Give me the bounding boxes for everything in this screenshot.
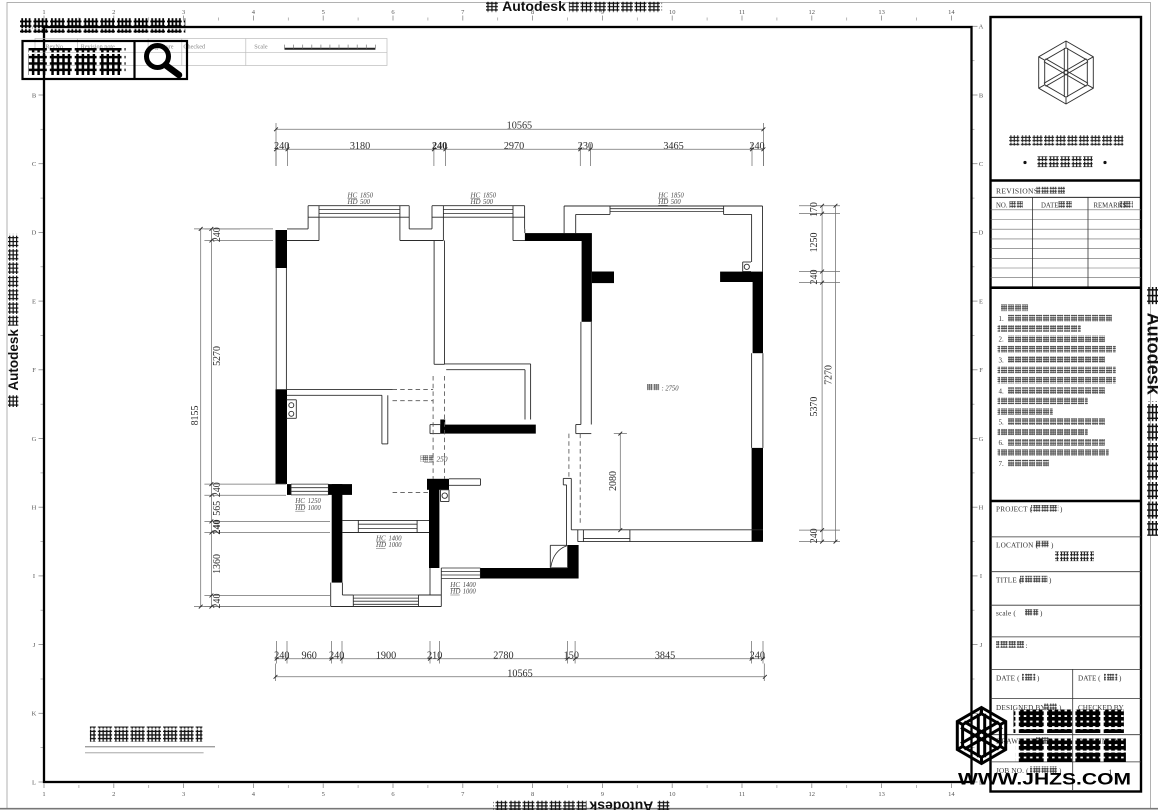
svg-text:240: 240	[274, 141, 289, 152]
svg-text:240: 240	[211, 519, 223, 534]
svg-text:1.: 1.	[999, 315, 1005, 323]
svg-text:5: 5	[322, 791, 325, 798]
svg-text:Autodesk: Autodesk	[1144, 313, 1158, 396]
svg-text:1: 1	[42, 791, 45, 798]
svg-text:250: 250	[437, 456, 448, 464]
svg-text:DATE (: DATE (	[996, 674, 1020, 682]
svg-text:LOCATION (: LOCATION (	[996, 541, 1039, 549]
svg-text:TITLE (: TITLE (	[996, 576, 1022, 584]
svg-text:scale (: scale (	[996, 610, 1016, 618]
svg-text:5270: 5270	[211, 346, 223, 366]
svg-text:E: E	[979, 298, 983, 305]
svg-text:Scale: Scale	[254, 44, 268, 51]
svg-text:A: A	[979, 24, 984, 31]
svg-text:240: 240	[808, 528, 820, 543]
svg-text:565: 565	[211, 500, 223, 515]
svg-text:D: D	[979, 230, 984, 237]
svg-text:D: D	[32, 230, 37, 237]
svg-text:C: C	[979, 161, 983, 168]
svg-text:HD: HD	[294, 504, 305, 512]
svg-text:960: 960	[302, 650, 317, 661]
svg-text:3180: 3180	[350, 141, 370, 152]
svg-text:3: 3	[182, 9, 185, 16]
svg-text:E: E	[32, 298, 36, 305]
svg-text:1000: 1000	[463, 588, 476, 596]
svg-text:HD: HD	[470, 198, 481, 206]
svg-text:230: 230	[578, 141, 593, 152]
svg-text:5.: 5.	[999, 419, 1005, 427]
svg-text:1000: 1000	[308, 504, 321, 512]
svg-text:1000: 1000	[389, 541, 402, 549]
svg-text:240: 240	[750, 650, 765, 661]
svg-text:DATE (: DATE (	[1078, 674, 1101, 682]
svg-text::: :	[1026, 642, 1028, 650]
svg-text:7270: 7270	[823, 365, 835, 385]
svg-text:REVISIONS: REVISIONS	[996, 187, 1038, 196]
svg-text:Autodesk: Autodesk	[502, 0, 566, 14]
svg-text:I: I	[980, 573, 982, 580]
svg-text:12: 12	[809, 791, 816, 798]
svg-text:12: 12	[809, 9, 816, 16]
svg-text:150: 150	[564, 650, 579, 661]
svg-text:500: 500	[360, 198, 370, 206]
svg-text:Autodesk: Autodesk	[6, 329, 21, 391]
svg-text:NO.: NO.	[996, 202, 1008, 209]
svg-text:L: L	[32, 779, 36, 786]
svg-text:8155: 8155	[189, 405, 201, 425]
svg-text:240: 240	[211, 482, 223, 497]
svg-text:I: I	[33, 573, 35, 580]
svg-text:2080: 2080	[607, 471, 619, 491]
svg-text:1: 1	[42, 9, 45, 16]
svg-text:1900: 1900	[376, 650, 396, 661]
svg-text:500: 500	[671, 198, 681, 206]
svg-text:14: 14	[948, 9, 955, 16]
svg-text:210: 210	[427, 650, 442, 661]
svg-text:2.: 2.	[999, 336, 1005, 344]
svg-text:7.: 7.	[999, 460, 1005, 468]
svg-text:G: G	[979, 436, 984, 443]
svg-text:4.: 4.	[999, 388, 1005, 396]
svg-text:3845: 3845	[655, 650, 675, 661]
svg-text:B: B	[979, 92, 984, 99]
svg-text:13: 13	[878, 9, 885, 16]
svg-text:PROJECT (: PROJECT (	[996, 506, 1033, 514]
svg-text:3465: 3465	[663, 141, 683, 152]
svg-text:500: 500	[483, 198, 493, 206]
svg-text:H: H	[32, 505, 37, 512]
svg-text:3: 3	[182, 791, 185, 798]
svg-text:B: B	[32, 92, 37, 99]
svg-text:9: 9	[601, 791, 604, 798]
svg-text:2: 2	[112, 9, 115, 16]
svg-text:13: 13	[878, 791, 885, 798]
svg-text:11: 11	[739, 9, 745, 16]
svg-text:6.: 6.	[999, 439, 1005, 447]
svg-text:10565: 10565	[507, 668, 532, 679]
svg-text:K: K	[32, 711, 37, 718]
svg-text:170: 170	[808, 202, 820, 217]
svg-text:10: 10	[669, 9, 676, 16]
svg-text:5: 5	[322, 9, 325, 16]
svg-text:H: H	[979, 505, 984, 512]
svg-text:DATE: DATE	[1041, 202, 1058, 209]
svg-text:Autodesk: Autodesk	[589, 798, 653, 810]
svg-text:2: 2	[112, 791, 115, 798]
svg-text:240: 240	[329, 650, 344, 661]
svg-text:HD: HD	[347, 198, 358, 206]
svg-text:HD: HD	[375, 541, 386, 549]
svg-text:8: 8	[531, 791, 534, 798]
svg-text:F: F	[32, 367, 36, 374]
svg-text:14: 14	[948, 791, 955, 798]
svg-text:F: F	[979, 367, 983, 374]
svg-text:240: 240	[211, 227, 223, 242]
svg-text:G: G	[32, 436, 37, 443]
svg-text:10565: 10565	[507, 121, 532, 132]
svg-text:2780: 2780	[493, 650, 513, 661]
svg-text:240: 240	[274, 650, 289, 661]
svg-text:1250: 1250	[808, 232, 820, 252]
svg-text:3.: 3.	[999, 356, 1005, 364]
svg-text:HD: HD	[449, 588, 460, 596]
svg-text:240: 240	[211, 593, 223, 608]
svg-text:240: 240	[432, 141, 447, 152]
svg-text:WWW.JHZS.COM: WWW.JHZS.COM	[958, 771, 1131, 789]
svg-text:2970: 2970	[504, 141, 524, 152]
svg-text:C: C	[32, 161, 36, 168]
svg-text:240: 240	[749, 141, 764, 152]
svg-text:: 2750: : 2750	[662, 384, 679, 392]
svg-text:10: 10	[669, 791, 676, 798]
svg-text:5370: 5370	[808, 396, 820, 416]
svg-text:HD: HD	[657, 198, 668, 206]
svg-text:1360: 1360	[211, 554, 223, 574]
svg-text:240: 240	[808, 269, 820, 284]
svg-text:11: 11	[739, 791, 745, 798]
